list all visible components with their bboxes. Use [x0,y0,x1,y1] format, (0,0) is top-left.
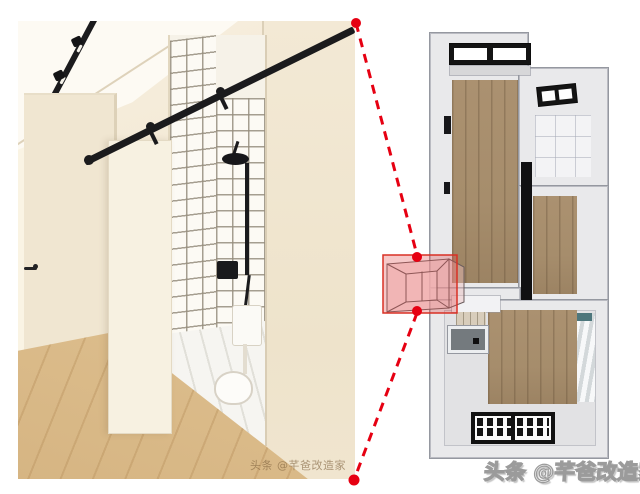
page: 头条 @芊爸改造家 [0,0,640,494]
plan-shower-tray [448,326,488,353]
balcony-window-mullion [511,412,515,444]
plan-wood-floor-east [533,196,577,294]
window-pane [558,88,572,99]
plan-counter [452,296,500,312]
plan-tile-floor-northeast [535,115,591,177]
plan-curtain-rod [577,313,592,321]
floor-plan [0,0,640,494]
window-pane [542,90,556,101]
plan-balcony-window [471,412,555,444]
plan-curtain [577,313,595,402]
plan-door-opening [521,162,532,300]
plan-closet-slot [444,182,450,194]
plan-faucet-icon [473,338,479,344]
window-pane [493,48,526,60]
plan-window-sill [450,66,530,75]
plan-window-north [450,44,530,64]
plan-wood-floor-south [488,310,577,404]
brand-watermark: 头条 @芊爸改造家 [483,456,640,486]
plan-wood-floor-north [452,80,518,283]
plan-tile-strip [456,312,486,325]
window-pane [454,48,487,60]
plan-closet-slot [444,116,451,134]
